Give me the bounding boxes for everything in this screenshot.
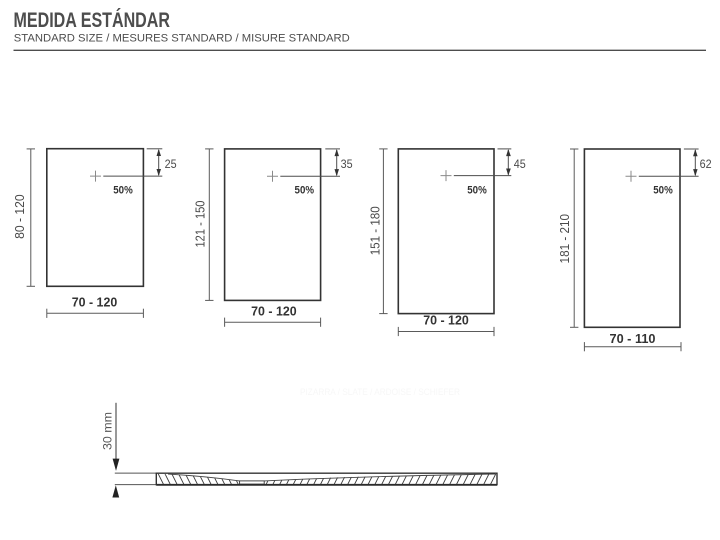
- svg-text:35: 35: [341, 157, 353, 171]
- svg-text:70 - 120: 70 - 120: [72, 294, 118, 309]
- svg-text:MEDIDA ESTÁNDAR: MEDIDA ESTÁNDAR: [14, 7, 171, 32]
- svg-text:151 - 180: 151 - 180: [367, 206, 382, 255]
- svg-text:45: 45: [514, 157, 526, 171]
- svg-text:70 - 120: 70 - 120: [423, 313, 469, 328]
- svg-text:80 - 120: 80 - 120: [12, 194, 27, 239]
- svg-text:70 - 110: 70 - 110: [610, 331, 656, 346]
- svg-text:50%: 50%: [467, 185, 487, 197]
- svg-text:25: 25: [165, 157, 177, 171]
- svg-text:62: 62: [700, 157, 712, 171]
- svg-text:70 - 120: 70 - 120: [251, 303, 297, 318]
- svg-text:PIZARRA / SLATE / ARDOISE / SC: PIZARRA / SLATE / ARDOISE / SCHIEFER: [300, 387, 460, 398]
- svg-text:50%: 50%: [113, 185, 133, 197]
- svg-text:181 - 210: 181 - 210: [557, 214, 572, 264]
- svg-text:50%: 50%: [653, 185, 673, 197]
- svg-text:50%: 50%: [295, 185, 315, 197]
- svg-text:121 - 150: 121 - 150: [193, 201, 208, 248]
- svg-text:30 mm: 30 mm: [101, 412, 115, 450]
- svg-text:STANDARD SIZE / MESURES STANDA: STANDARD SIZE / MESURES STANDARD / MISUR…: [14, 33, 350, 45]
